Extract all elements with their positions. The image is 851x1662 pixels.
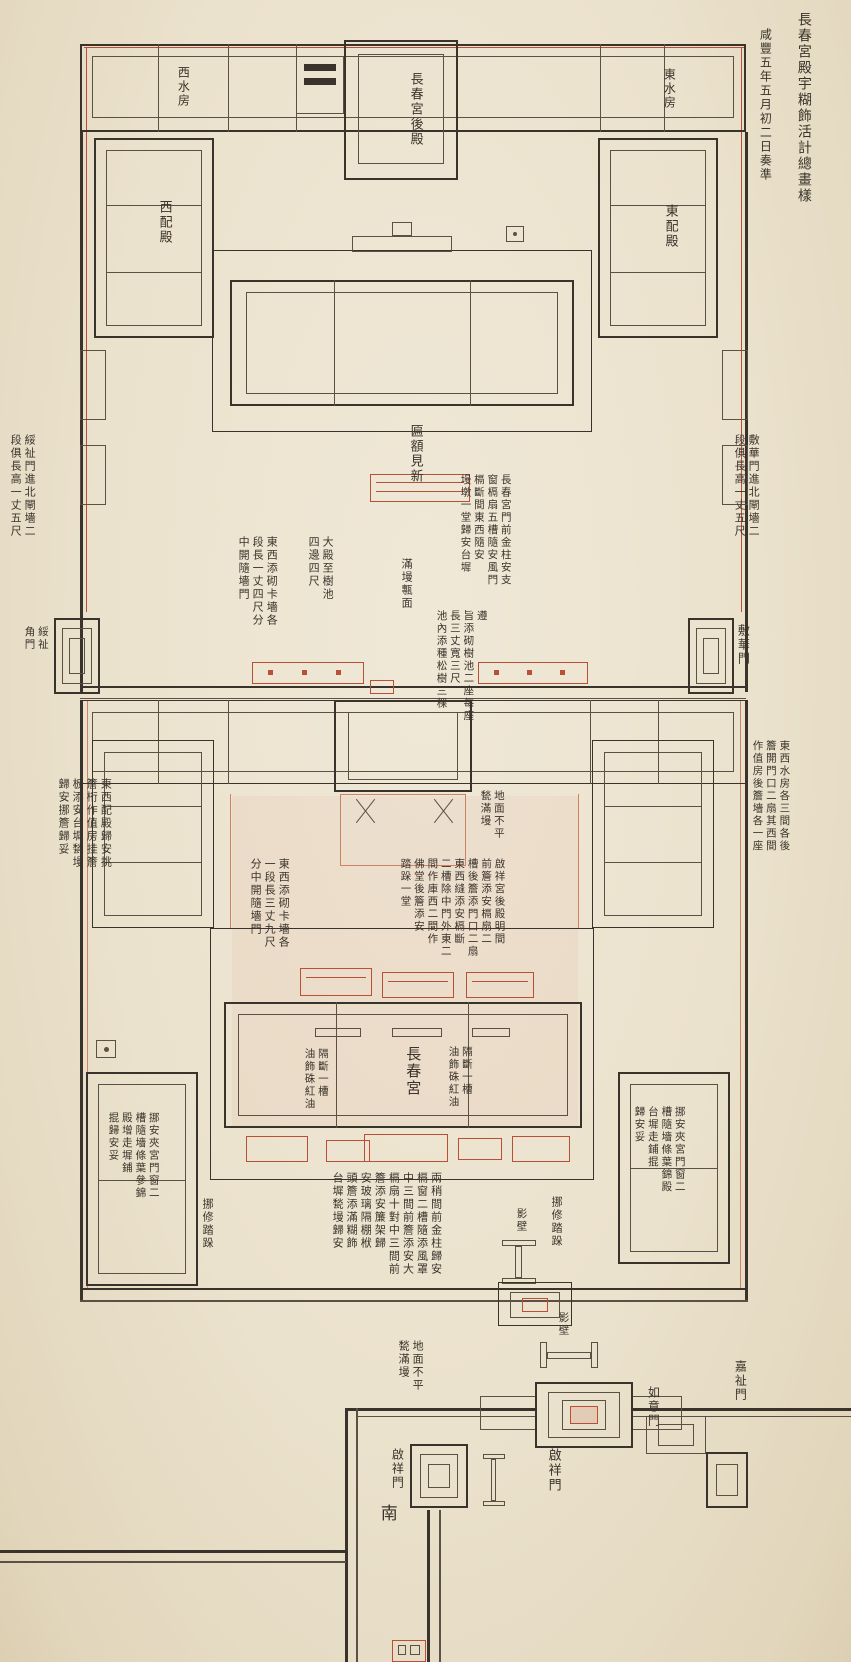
note-upper-screen-wall: 東西添砌卡墻各 段長一丈四尺分 中開隨墻門: [236, 536, 278, 638]
precinct-wall: [427, 1510, 430, 1662]
precinct-wall-2: [439, 1510, 441, 1662]
stove-mark: [304, 64, 336, 71]
room-divider: [610, 205, 706, 206]
censer-dot: [513, 232, 517, 236]
note-steps-east: 挪修踏跺: [549, 1196, 563, 1254]
rear-hall-label: 長春宮後殿: [407, 72, 424, 156]
note-east-wall: 敷華門進北閘墻二 段俱長高一丈五尺: [732, 434, 760, 552]
hall-partition: [336, 1002, 337, 1128]
note-front-columns: 長春宮門前金柱安支 窗槅扇五槽隨安風門 槅斷間東西隨安 墁墩一堂歸安台墀: [458, 474, 512, 594]
room-divider: [158, 44, 159, 132]
screen-wall-label-1: 影壁: [514, 1208, 527, 1240]
qixiang-gate-red-door: [570, 1406, 598, 1424]
screen-wall-structure-2: [591, 1342, 598, 1368]
precinct-wall-2: [356, 1408, 358, 1662]
qixiang-gate-west-door: [428, 1464, 450, 1488]
middle-wall-inner: [80, 698, 746, 699]
inner-south-wall: [80, 1288, 748, 1290]
wall-room: [80, 350, 106, 420]
north-porch: [352, 236, 452, 252]
well-dot: [104, 1047, 109, 1052]
door-opening: [392, 1028, 442, 1037]
plan-sheet: 長春宮殿宇糊飾活計總畫樣咸豐五年五月初二日奏準西水房東水房長春宮後殿西配殿東配殿…: [0, 0, 851, 1662]
red-south-step: [458, 1138, 502, 1160]
hall-partition: [470, 280, 471, 406]
red-court-line-west: [230, 794, 231, 928]
west-gate-screen: [483, 1501, 505, 1506]
note-partition-east: 隔斷一槽 油飾硃紅油: [446, 1046, 473, 1116]
note-sw-rooms: 挪安夾宮門窗二 槽隨墻條葉參錦 殿增走墀鋪 掍歸安妥: [106, 1112, 160, 1207]
seal-mark: [410, 1645, 420, 1655]
west-corner-gate-door: [69, 638, 85, 674]
room-divider: [604, 806, 702, 807]
tree-pit-dot: [268, 670, 273, 675]
room-divider: [600, 44, 601, 132]
west-side-hall-inner: [106, 150, 202, 326]
door-swing-mark: [434, 798, 452, 824]
red-north-step: [300, 968, 372, 996]
note-west-wall: 綏祉門進北閘墻二 段俱長高一丈五尺: [8, 434, 36, 552]
jiazhi-gate-inner: [716, 1464, 738, 1496]
note-mid-screen-wall: 東西添砌卡墻各 一段長三丈九尺 分中開隨墻門: [248, 858, 290, 956]
ruyi-gate-label: 如意門: [645, 1386, 660, 1434]
upper-hall-inner: [246, 292, 558, 394]
note-side-halls-repair: 東西配殿歸安挑 簷桁作值房挂簷 板添安台墀甃墁 歸安挪簷歸妥: [56, 778, 112, 876]
screen-wall-label-2: 影壁: [556, 1312, 569, 1344]
red-south-step: [364, 1134, 448, 1162]
east-corner-gate-door: [703, 638, 719, 674]
room-divider: [590, 700, 591, 784]
precinct-wall: [0, 1550, 346, 1553]
note-uneven-ground-2: 地面不平 甃滿墁: [396, 1340, 424, 1400]
east-corner-gate-label: 敷華門: [735, 624, 750, 672]
red-line-west: [86, 48, 87, 612]
west-side-hall-label: 西配殿: [156, 200, 173, 256]
room-divider: [106, 205, 202, 206]
tree-pit-dot: [494, 670, 499, 675]
red-south-step: [246, 1136, 308, 1162]
note-water-rooms-doors: 東西水房各三間各後 簷開門口二扇其西間 作值房後簷墻各一座: [750, 740, 790, 858]
red-south-step: [512, 1136, 570, 1162]
east-side-hall-label: 東配殿: [662, 204, 679, 260]
north-porch-step: [392, 222, 412, 236]
east-water-rooms: 東水房: [661, 68, 676, 120]
room-divider: [610, 272, 706, 273]
main-gate-wing: [480, 1396, 536, 1430]
jiazhi-gate-label: 嘉祉門: [732, 1360, 747, 1408]
screen-wall-structure-1: [515, 1246, 522, 1278]
outer-wall-east-lower: [745, 700, 748, 1302]
red-north-step: [466, 972, 534, 998]
room-divider: [104, 806, 202, 807]
note-hall-to-treepit: 大殿至樹池 四邊四尺: [306, 536, 334, 610]
west-gate-screen: [491, 1459, 496, 1501]
seal-mark: [398, 1645, 406, 1655]
ruyi-gate-opening: [658, 1424, 694, 1446]
changchun-hall-label: 長春宮: [402, 1046, 421, 1106]
red-north-step: [382, 972, 454, 998]
west-mid-rooms-inner: [104, 752, 202, 916]
note-tree-pits: 遵 旨添砌樹池二座每座 長三丈寬三尺 池內添種松樹三棵: [434, 610, 488, 728]
red-court-line-east: [578, 794, 579, 928]
note-rear-hall-works: 啟祥宮後殿明間 前簷添安槅扇二 槽後簷添門口二扇 東西縫添安槅斷 二槽除中門外東…: [398, 858, 506, 964]
screen-wall-structure-2: [547, 1352, 591, 1359]
red-line-east-lower: [740, 700, 741, 1290]
tree-pit-dot: [336, 670, 341, 675]
west-corner-gate-label: 綏祉 角門: [22, 626, 49, 662]
tree-pit-dot: [560, 670, 565, 675]
door-opening: [472, 1028, 510, 1037]
west-water-rooms: 西水房: [175, 66, 190, 118]
stove-mark: [304, 78, 336, 85]
wall-room: [722, 350, 748, 420]
room-divider: [228, 700, 229, 784]
inner-gate-red-door: [522, 1298, 548, 1312]
note-front-facade-works: 兩稍間前金柱歸安 槅窗二槽隨添風罩 中三間前簷添安大 槅扇十對中三間前 簷添安簾…: [330, 1172, 443, 1284]
door-opening: [315, 1028, 361, 1037]
compass-south: 南: [376, 1504, 398, 1530]
margin-title: 長春宮殿宇糊飾活計總畫樣: [794, 12, 812, 222]
inner-south-wall-2: [80, 1300, 748, 1302]
east-side-hall-inner: [610, 150, 706, 326]
note-uneven-ground-1: 地面不平 甃滿墁: [478, 790, 505, 848]
room-divider: [604, 862, 702, 863]
room-divider: [106, 272, 202, 273]
precinct-wall-2: [0, 1561, 346, 1563]
middle-wall-red-door: [370, 680, 394, 694]
note-se-rooms: 挪安夾宮門窗二 槽隨墻條葉錦殿 台墀走鋪掍 歸安妥: [632, 1106, 686, 1201]
east-mid-rooms-inner: [604, 752, 702, 916]
screen-wall-structure-2: [540, 1342, 547, 1368]
precinct-wall: [345, 1408, 348, 1662]
plaque-renew-note: 匾額見新: [407, 424, 424, 492]
hall-partition: [334, 280, 335, 406]
middle-wall: [80, 686, 746, 688]
red-step-line: [472, 981, 528, 982]
room-divider: [228, 44, 229, 132]
qixiang-gate-main-label: 啟祥門: [545, 1448, 562, 1500]
tree-pit-dot: [527, 670, 532, 675]
red-step-line: [306, 977, 366, 978]
wall-room: [80, 445, 106, 505]
note-partition-west: 隔斷一槽 油飾硃紅油: [302, 1048, 329, 1118]
margin-date: 咸豐五年五月初二日奏準: [757, 28, 772, 198]
door-swing-mark: [356, 798, 374, 824]
qixiang-gate-west-label: 啟祥門: [389, 1448, 404, 1496]
rear-hall-inner: [358, 54, 444, 164]
note-paving: 滿墁甎面: [399, 558, 413, 618]
red-step-line: [388, 981, 448, 982]
tree-pit-dot: [302, 670, 307, 675]
note-steps-west: 挪修踏跺: [200, 1198, 214, 1256]
room-divider: [104, 862, 202, 863]
